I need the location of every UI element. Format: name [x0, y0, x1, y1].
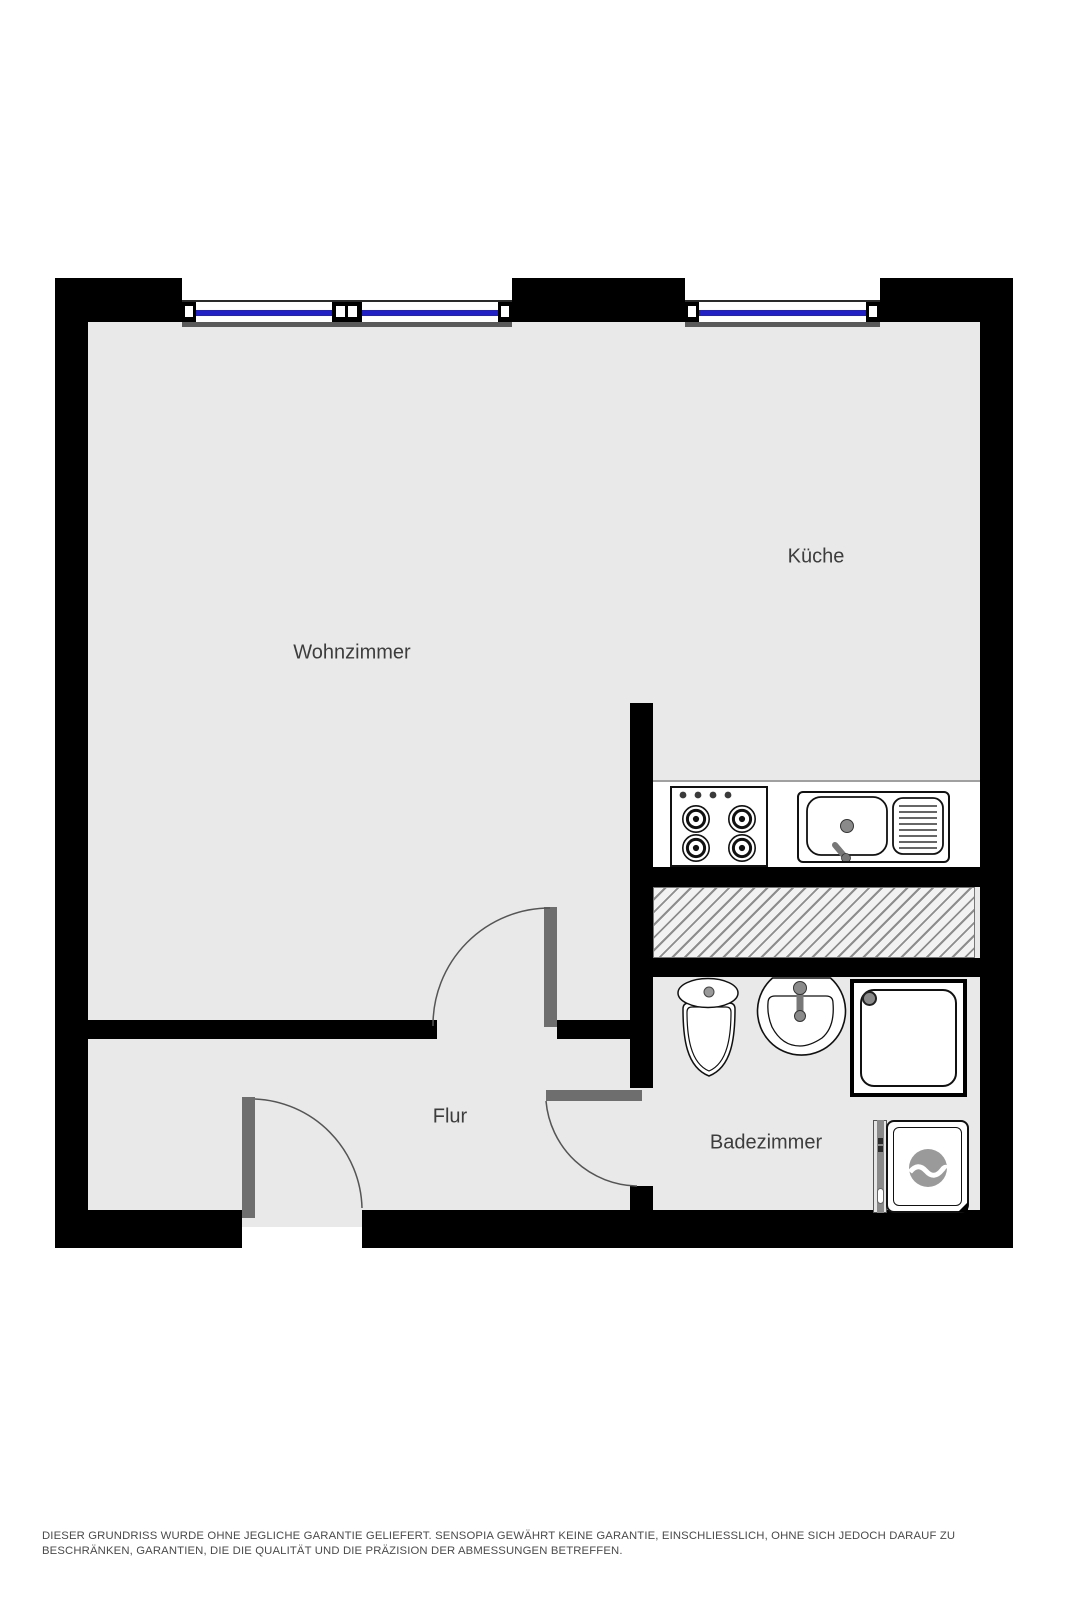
wall-top-left — [55, 278, 182, 322]
wall-left — [55, 278, 88, 1248]
hatched-shaft-area — [653, 887, 975, 958]
disclaimer-text: DIESER GRUNDRISS WURDE OHNE JEGLICHE GAR… — [42, 1529, 990, 1558]
room-label-hall: Flur — [433, 1106, 467, 1129]
window-frame-cap — [498, 302, 512, 322]
entrance-threshold — [242, 1210, 362, 1227]
toilet-icon — [672, 975, 744, 1081]
door-swing-arc-bathroom — [543, 1098, 643, 1190]
stove-icon — [670, 786, 768, 867]
window-living-room — [182, 300, 512, 327]
window-frame-cap — [866, 302, 880, 322]
window-glass-line — [695, 310, 870, 316]
wall-right — [980, 278, 1013, 1248]
floor-area — [88, 322, 980, 1210]
wall-bottom-left — [55, 1210, 242, 1248]
shower-icon — [850, 979, 967, 1097]
wall-hall-right — [557, 1020, 653, 1039]
kitchen-sink-icon — [797, 791, 950, 863]
room-label-bath: Badezimmer — [710, 1132, 822, 1155]
window-frame-cap — [685, 302, 699, 322]
washing-machine-icon — [873, 1120, 969, 1213]
door-swing-arc-entrance — [252, 1095, 366, 1212]
window-frame-cap — [182, 302, 196, 322]
window-kitchen — [685, 300, 880, 327]
floorplan-page: Wohnzimmer Küche Flur Badezimmer DIESER … — [0, 0, 1067, 1600]
door-swing-arc-living — [430, 905, 555, 1030]
room-label-kitchen: Küche — [788, 546, 845, 569]
window-mullion — [332, 302, 362, 322]
washbasin-icon — [752, 975, 852, 1060]
room-label-living: Wohnzimmer — [293, 642, 410, 665]
wall-band-above-hatch — [630, 867, 980, 887]
wall-top-middle — [512, 278, 685, 322]
wall-bottom-right — [362, 1210, 1013, 1248]
wall-hall-left — [88, 1020, 437, 1039]
